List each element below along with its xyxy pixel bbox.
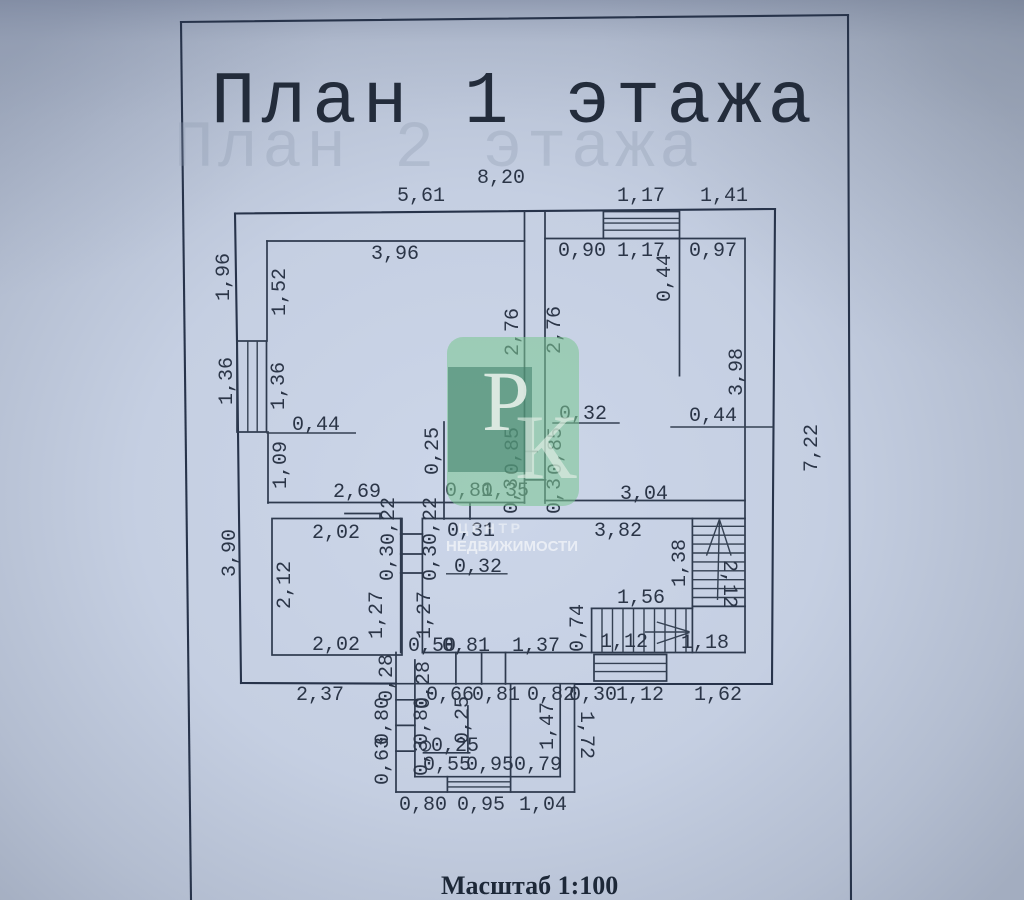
svg-text:0,81: 0,81	[472, 684, 520, 707]
svg-text:3,82: 3,82	[594, 520, 642, 543]
svg-text:0,25: 0,25	[452, 696, 475, 744]
svg-text:0,63: 0,63	[372, 737, 395, 785]
svg-text:1,12: 1,12	[616, 684, 664, 707]
svg-text:0,79: 0,79	[514, 754, 562, 777]
svg-text:1,38: 1,38	[669, 539, 692, 587]
svg-text:К: К	[515, 396, 577, 498]
svg-text:1,72: 1,72	[574, 711, 597, 759]
svg-text:1,96: 1,96	[213, 253, 236, 301]
svg-text:0,3: 0,3	[420, 545, 443, 581]
svg-text:0,44: 0,44	[654, 254, 677, 302]
svg-text:2,02: 2,02	[312, 522, 360, 545]
svg-text:0,25: 0,25	[422, 427, 445, 475]
svg-text:7,22: 7,22	[801, 424, 824, 472]
svg-text:3,04: 3,04	[620, 483, 668, 506]
svg-text:2,02: 2,02	[312, 634, 360, 657]
svg-text:0,95: 0,95	[457, 794, 505, 817]
svg-text:1,52: 1,52	[269, 268, 292, 316]
svg-text:1,62: 1,62	[694, 684, 742, 707]
svg-text:НЕДВИЖИМОСТИ: НЕДВИЖИМОСТИ	[446, 538, 578, 555]
svg-text:2,12: 2,12	[717, 560, 740, 608]
svg-text:0,74: 0,74	[567, 604, 590, 652]
svg-text:1,36: 1,36	[216, 357, 239, 405]
svg-text:1,47: 1,47	[537, 702, 560, 750]
svg-text:0,28: 0,28	[376, 654, 399, 702]
svg-text:2,12: 2,12	[274, 561, 297, 609]
svg-text:1,27: 1,27	[414, 591, 437, 639]
svg-text:0,81: 0,81	[442, 635, 490, 658]
svg-text:1,12: 1,12	[600, 631, 648, 654]
svg-text:3,98: 3,98	[726, 348, 749, 396]
svg-text:2,69: 2,69	[333, 481, 381, 504]
svg-text:3,90: 3,90	[219, 529, 242, 577]
svg-text:1,56: 1,56	[617, 587, 665, 610]
svg-text:1,37: 1,37	[512, 635, 560, 658]
svg-text:0,30: 0,30	[569, 684, 617, 707]
svg-text:2,37: 2,37	[296, 684, 344, 707]
svg-text:1,17: 1,17	[617, 185, 665, 208]
svg-text:0,22: 0,22	[420, 497, 443, 545]
svg-text:0,44: 0,44	[292, 414, 340, 437]
svg-text:5,61: 5,61	[397, 185, 445, 208]
svg-text:0,3: 0,3	[411, 740, 434, 776]
svg-text:ЦЕНТР: ЦЕНТР	[458, 520, 520, 536]
svg-text:0,95: 0,95	[466, 754, 514, 777]
svg-text:1,41: 1,41	[700, 185, 748, 208]
svg-text:1,27: 1,27	[366, 591, 389, 639]
svg-text:1,04: 1,04	[519, 794, 567, 817]
svg-text:Масштаб 1:100: Масштаб 1:100	[441, 871, 618, 900]
svg-text:1,36: 1,36	[268, 362, 291, 410]
svg-text:3,96: 3,96	[371, 243, 419, 266]
svg-text:0,80: 0,80	[411, 697, 434, 745]
svg-text:0,22: 0,22	[378, 497, 401, 545]
svg-text:0,90: 0,90	[558, 240, 606, 263]
svg-text:0,32: 0,32	[454, 556, 502, 579]
svg-text:8,20: 8,20	[477, 167, 525, 190]
svg-text:0,3: 0,3	[377, 545, 400, 581]
svg-text:0,97: 0,97	[689, 240, 737, 263]
svg-text:0,80: 0,80	[399, 794, 447, 817]
svg-text:1,09: 1,09	[270, 441, 293, 489]
svg-text:0,44: 0,44	[689, 405, 737, 428]
svg-text:План 1 этажа: План 1 этажа	[211, 61, 818, 145]
svg-text:1,18: 1,18	[681, 632, 729, 655]
